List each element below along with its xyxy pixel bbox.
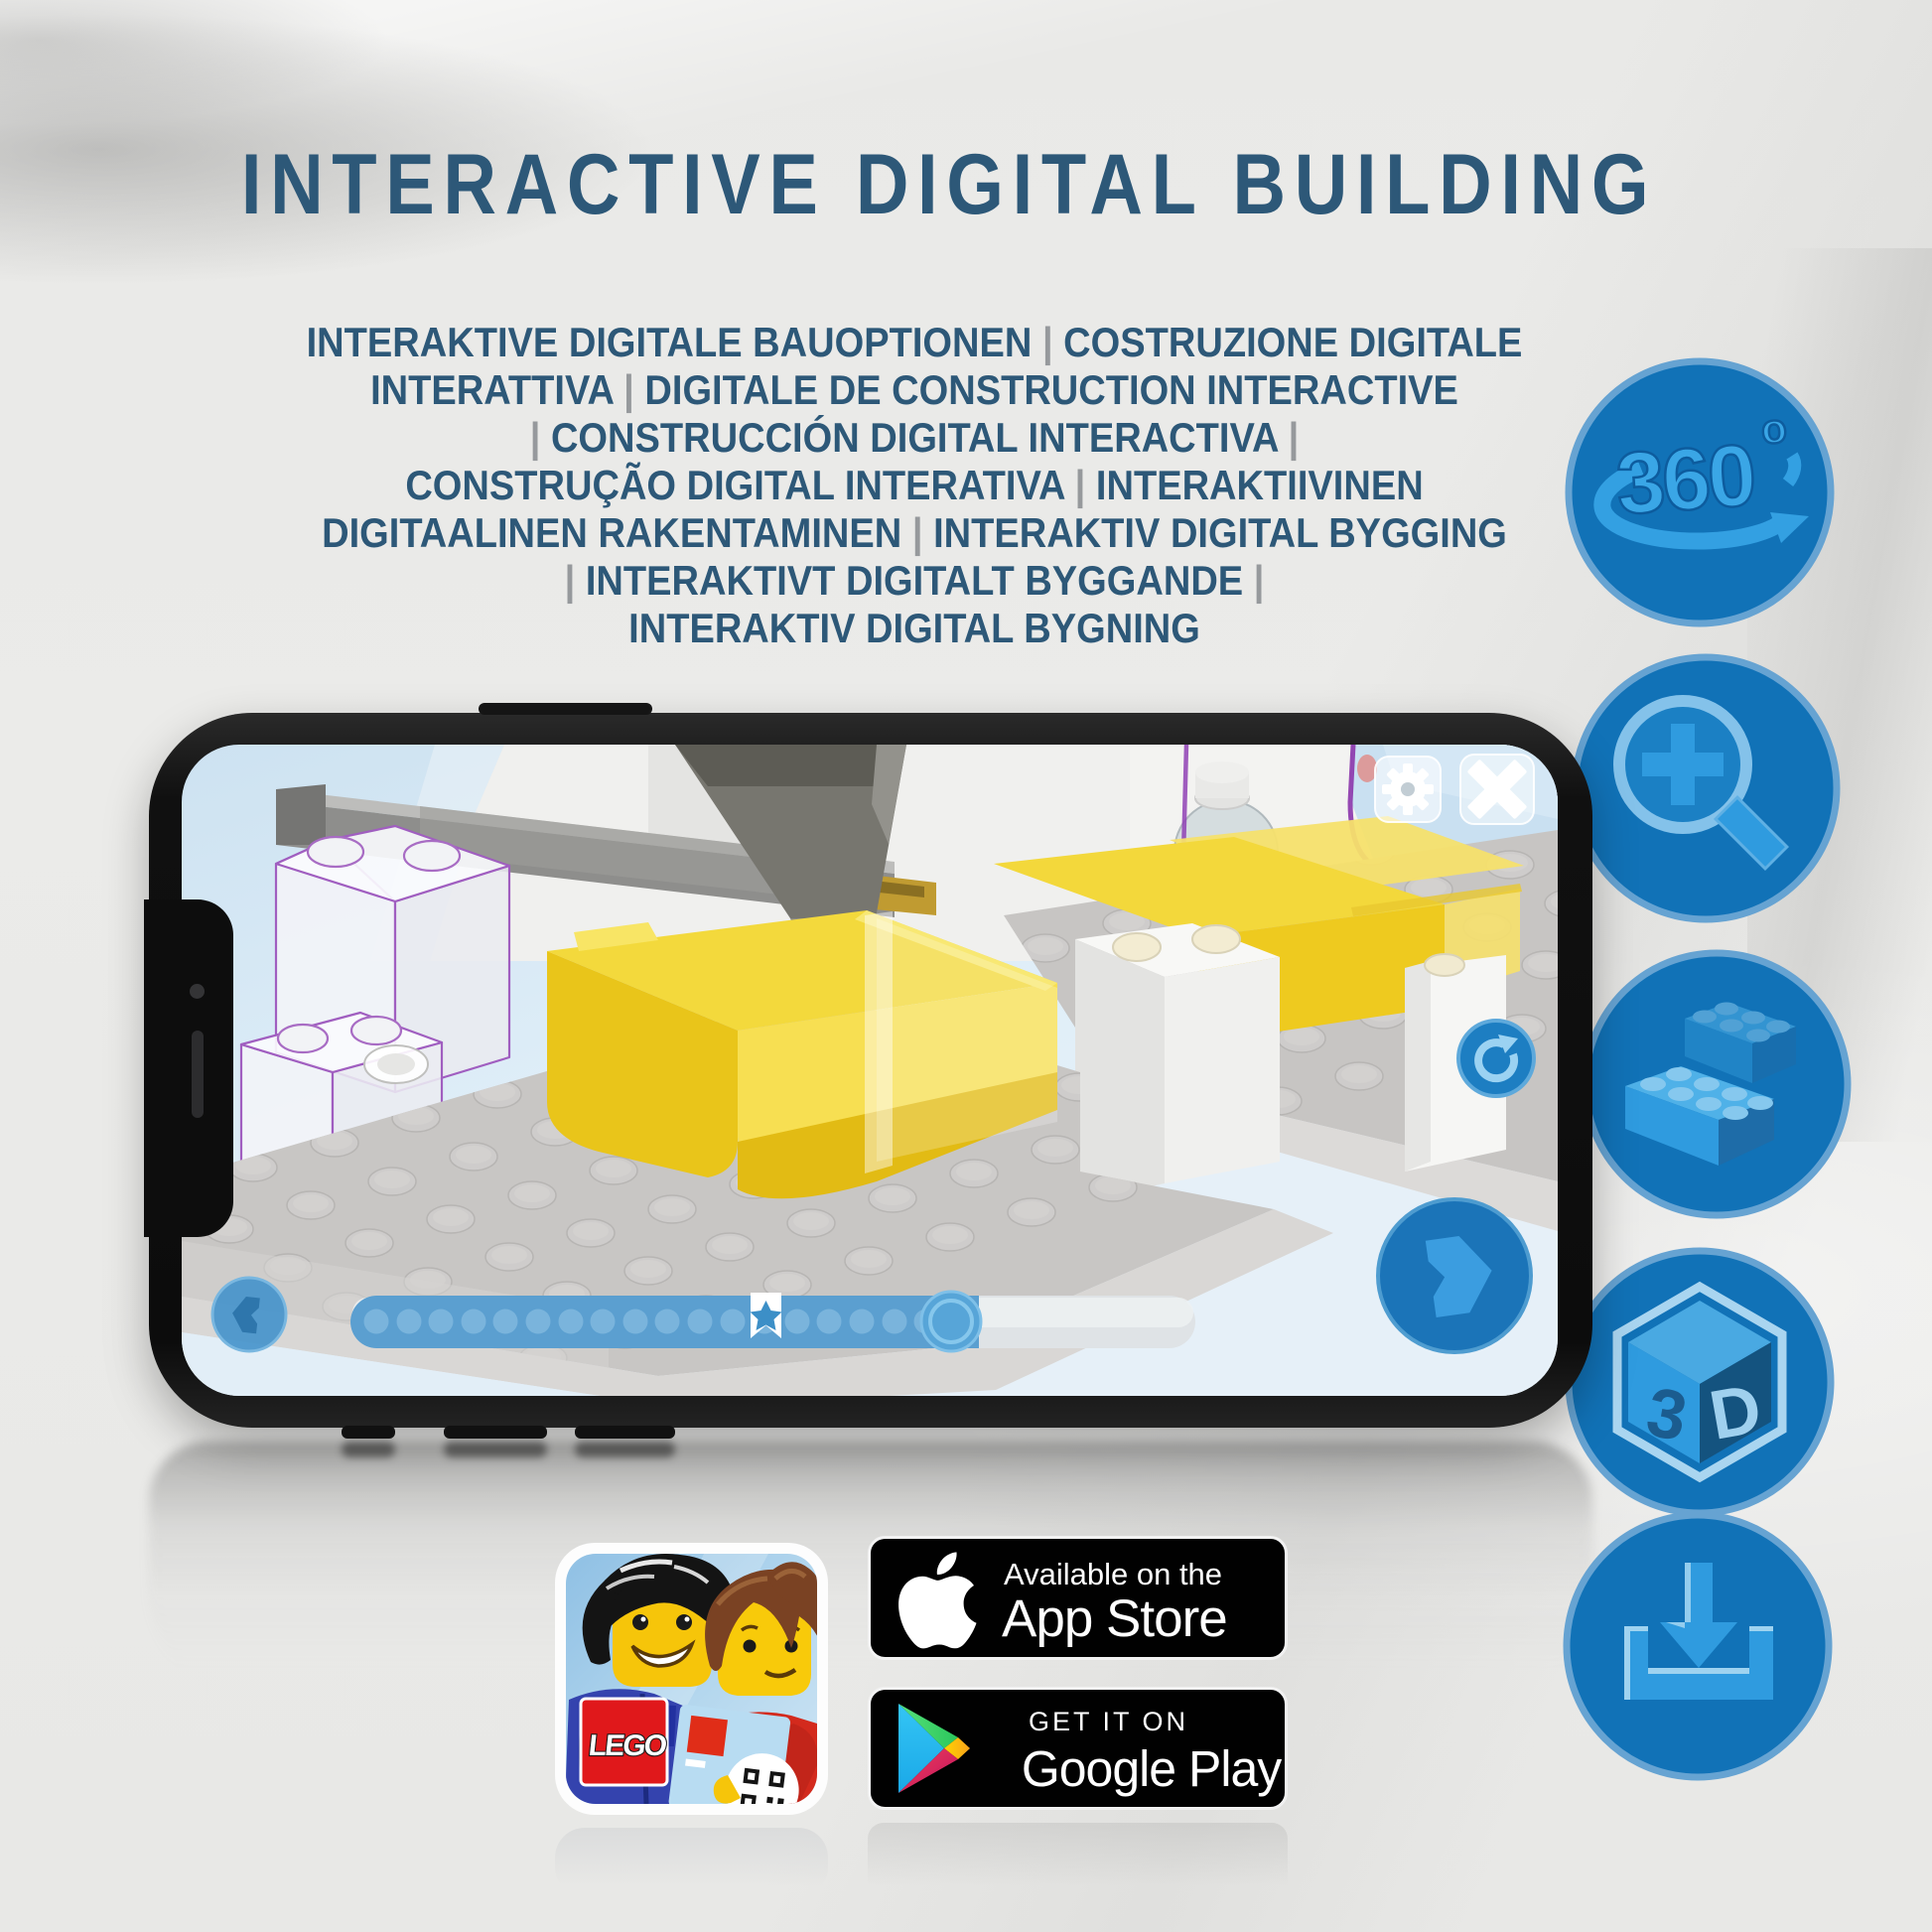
svg-text:GET IT ON: GET IT ON [1029,1707,1188,1736]
svg-text:Available on the: Available on the [1004,1557,1222,1591]
svg-text:360: 360 [1613,425,1756,532]
svg-text:LEGO: LEGO [587,1729,668,1762]
svg-text:o: o [1759,404,1788,453]
svg-text:Google Play: Google Play [1022,1740,1283,1798]
svg-text:App Store: App Store [1002,1589,1227,1648]
